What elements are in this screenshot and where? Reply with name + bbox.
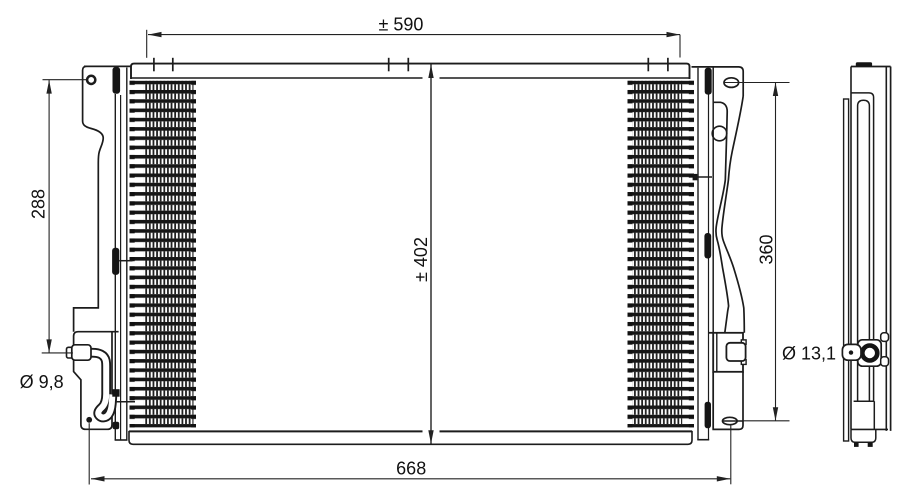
svg-text:288: 288 bbox=[29, 189, 49, 219]
svg-text:± 402: ± 402 bbox=[411, 237, 431, 282]
svg-text:Ø 9,8: Ø 9,8 bbox=[20, 372, 64, 392]
svg-text:668: 668 bbox=[396, 459, 426, 479]
svg-text:360: 360 bbox=[756, 234, 776, 264]
svg-text:± 590: ± 590 bbox=[379, 15, 424, 35]
svg-text:Ø 13,1: Ø 13,1 bbox=[782, 344, 836, 364]
